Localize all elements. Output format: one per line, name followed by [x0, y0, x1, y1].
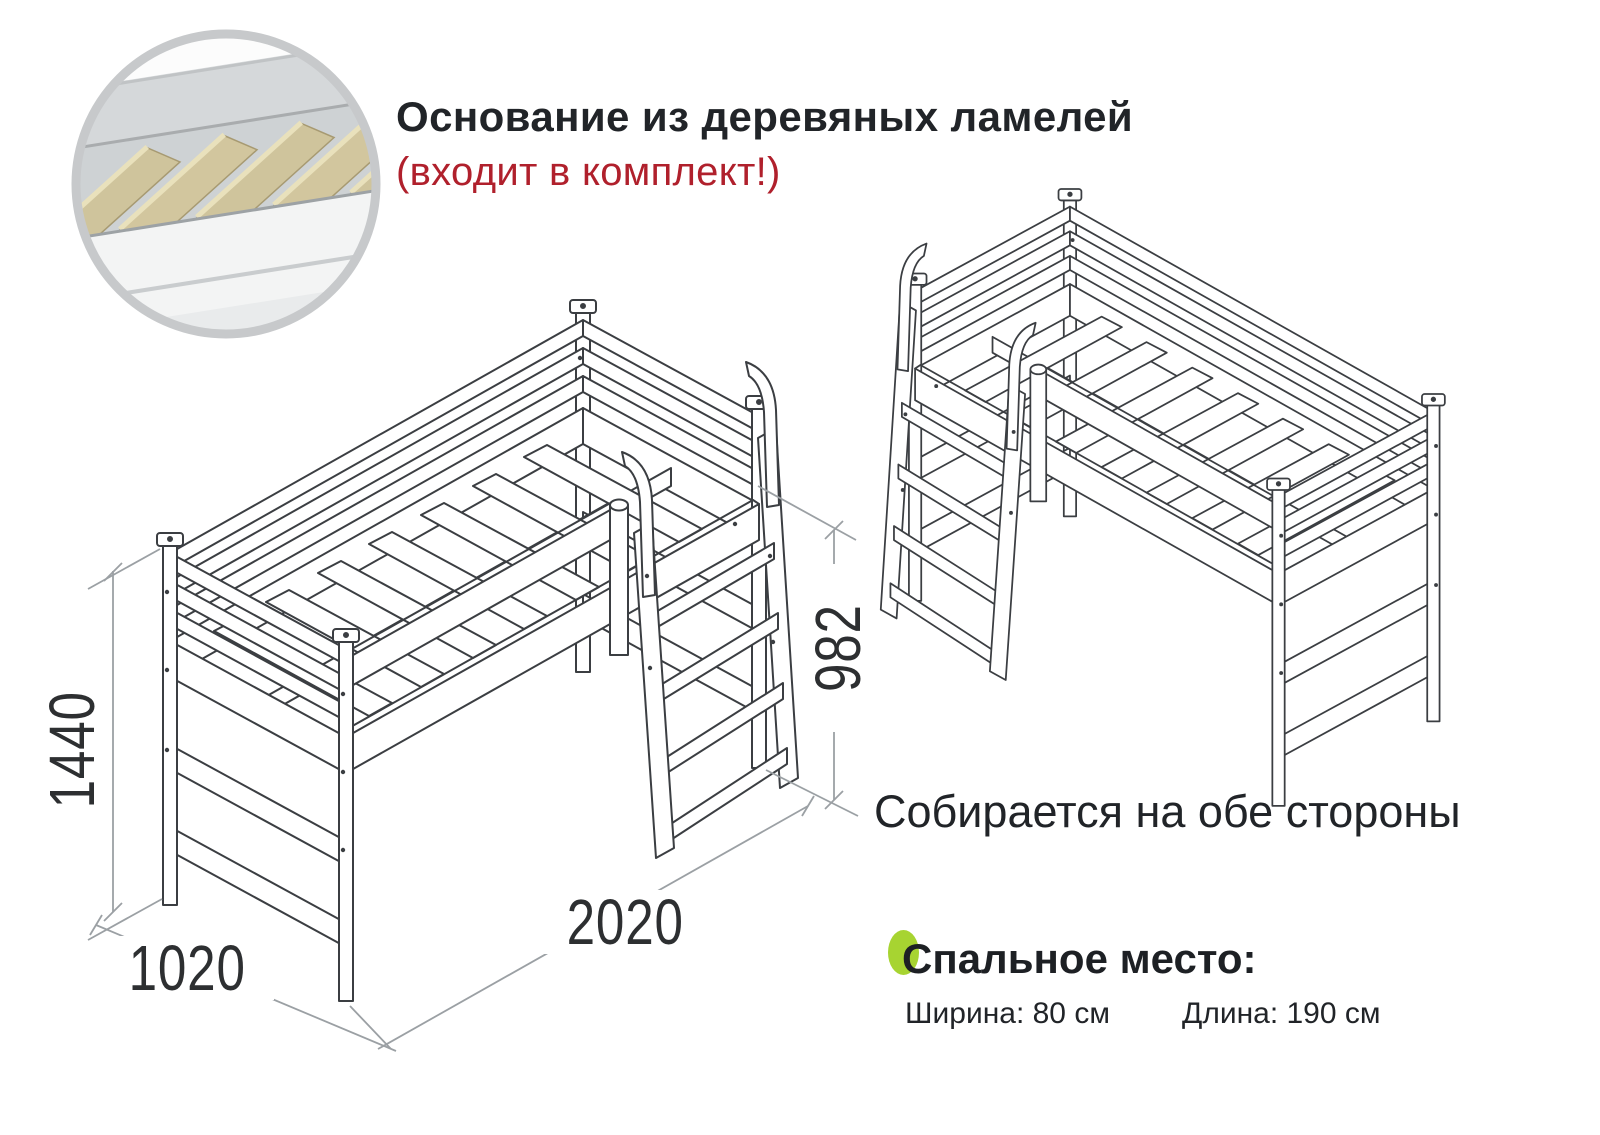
- both-sides-note: Собирается на обе стороны: [874, 789, 1461, 834]
- loft-bed-isometric-right: [881, 189, 1445, 806]
- sleeping-area-title: Спальное место:: [902, 938, 1257, 980]
- dimension-label-clearance: 982: [806, 564, 870, 732]
- dimension-label-length: 2020: [536, 890, 714, 954]
- sleeping-length-spec: Длина: 190 см: [1182, 999, 1381, 1029]
- dimension-label-total-height: 1440: [40, 644, 104, 856]
- product-infographic: { "header": { "title": "Основание из дер…: [0, 0, 1600, 1135]
- sleeping-width-spec: Ширина: 80 см: [905, 999, 1110, 1029]
- dimension-label-width: 1020: [100, 936, 274, 1000]
